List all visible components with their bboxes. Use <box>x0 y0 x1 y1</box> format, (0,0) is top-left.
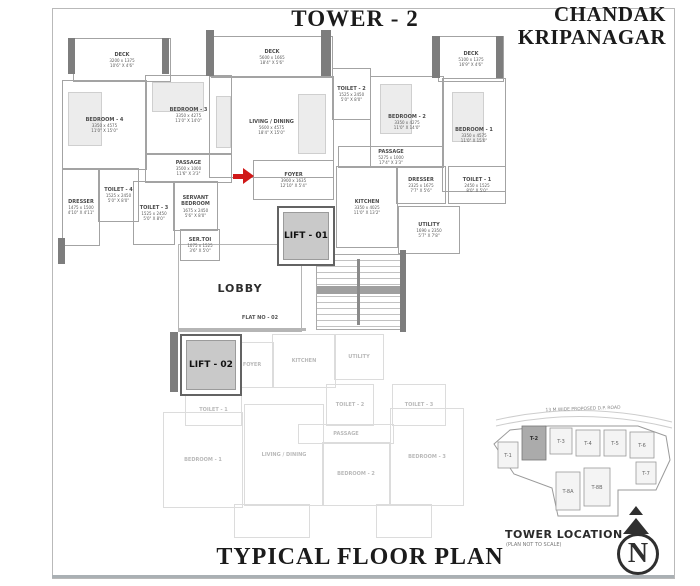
room-toilet-1: TOILET - 1 2450 x 1525 8'0" X 5'0" <box>448 166 506 204</box>
room-name: BEDROOM - 1 <box>184 457 222 464</box>
tower-location-map: 13 M WIDE PROPOSED D.P. ROAD T-1 T-2 T-3… <box>488 396 678 526</box>
room-dim-ft: 11'6" X 3'3" <box>177 171 201 176</box>
compass-spire-icon <box>629 506 643 515</box>
faded-deck <box>234 504 310 538</box>
tower-t2-highlighted <box>522 426 546 460</box>
wall-pillar <box>68 38 75 74</box>
room-name: BEDROOM - 3 <box>408 454 446 461</box>
room-passage-right: PASSAGE 5275 x 1000 17'4" X 3'3" <box>338 146 444 168</box>
room-dim-ft: 10'6" X 4'6" <box>110 63 134 68</box>
room-dim-ft: 17'4" X 3'3" <box>379 160 403 165</box>
entrance-arrow-icon <box>243 168 254 184</box>
room-dim-ft: 11'0" X 14'0" <box>175 118 201 123</box>
wall-duct <box>170 332 178 392</box>
plan-title: TYPICAL FLOOR PLAN <box>160 544 560 571</box>
room-dim-ft: 5'0" X 8'0" <box>143 216 164 221</box>
room-dim-ft: 11'0" X 13'2" <box>354 210 380 215</box>
wall-pillar <box>432 36 440 78</box>
room-dim-ft: 12'10" X 5'4" <box>280 183 306 188</box>
flat-no-label: FLAT NO - 02 <box>210 315 310 321</box>
faded-deck <box>376 504 432 538</box>
room-name: SERVANT BEDROOM <box>174 195 217 208</box>
room-dim-ft: 18'4" X 15'0" <box>258 130 284 135</box>
tower-label: T-3 <box>556 439 565 445</box>
brand-line-1: CHANDAK <box>488 3 666 26</box>
room-name: PASSAGE <box>333 431 358 438</box>
room-servant-bedroom: SERVANT BEDROOM 1675 x 2450 5'6" X 8'0" <box>173 181 218 231</box>
tower-label: T-4 <box>583 441 592 447</box>
room-toilet-3: TOILET - 3 1525 x 2450 5'0" X 8'0" <box>133 181 175 245</box>
room-dim-ft: 16'9" X 4'6" <box>459 62 483 67</box>
floor-plan-page: TOWER - 2 CHANDAK KRIPANAGAR TYPICAL FLO… <box>0 0 700 586</box>
stair-rail <box>357 259 360 325</box>
tower-label: T-5 <box>610 441 619 447</box>
room-name: LIVING / DINING <box>262 452 307 459</box>
room-name: BEDROOM - 2 <box>337 471 375 478</box>
entrance-arrow-tail <box>233 174 243 179</box>
room-dim-ft: 3'6" X 5'0" <box>189 248 210 253</box>
brand-name: CHANDAK KRIPANAGAR <box>488 3 666 48</box>
faded-room-utility: UTILITY <box>334 334 384 380</box>
room-dim-ft: 5'0" X 8'0" <box>108 198 129 203</box>
room-dresser-left: DRESSER 1475 x 1500 4'10" X 4'11" <box>62 168 100 246</box>
room-name: FOYER <box>243 362 261 369</box>
room-dim-ft: 11'0" X 14'0" <box>394 125 420 130</box>
lift-01: LIFT - 01 <box>277 206 335 266</box>
room-name: UTILITY <box>348 354 369 361</box>
room-dim-ft: 4'10" X 4'11" <box>68 210 94 215</box>
room-dim-ft: 5'7" X 7'8" <box>418 233 439 238</box>
compass-base-icon <box>623 518 649 534</box>
bottom-rule <box>52 575 674 578</box>
tower-location-title: TOWER LOCATION <box>505 528 623 541</box>
wall-pillar <box>321 30 331 76</box>
tower-label: T-1 <box>503 453 512 459</box>
page-title: TOWER - 2 <box>180 6 530 32</box>
room-toilet-2: TOILET - 2 1525 x 2450 5'0" X 8'0" <box>332 68 371 120</box>
wall-pillar <box>206 30 214 76</box>
room-dim-ft: 8'0" X 5'0" <box>466 188 487 193</box>
tower-label: T-7 <box>641 471 650 477</box>
room-dim-ft: 11'0" X 15'0" <box>91 128 117 133</box>
faded-room-bedroom-1: BEDROOM - 1 <box>163 412 243 508</box>
tower-label: T-8A <box>561 489 574 495</box>
lift-02: LIFT - 02 <box>180 334 242 396</box>
room-deck-mid: DECK 5600 x 1665 18'4" X 5'6" <box>211 36 333 78</box>
faded-room-living-dining: LIVING / DINING <box>244 404 324 506</box>
room-deck-right: DECK 5100 x 1375 16'9" X 4'6" <box>438 36 504 82</box>
room-dim-ft: 11'0" X 15'0" <box>461 138 487 143</box>
room-dim-ft: 5'6" X 8'0" <box>185 213 206 218</box>
room-kitchen: KITCHEN 3350 x 4025 11'0" X 13'2" <box>336 166 398 248</box>
tower-label: T-6 <box>637 443 646 449</box>
tower-location-subtitle: (PLAN NOT TO SCALE) <box>506 542 562 548</box>
wall-core-divider <box>178 328 306 331</box>
wall-pillar <box>162 38 169 74</box>
room-utility: UTILITY 1690 x 2350 5'7" X 7'8" <box>398 206 460 254</box>
room-bedroom-4: BEDROOM - 4 3350 x 4575 11'0" X 15'0" <box>62 80 147 170</box>
tower-label: T-8B <box>590 485 603 491</box>
north-compass-icon: N <box>617 533 659 575</box>
room-foyer: FOYER 3900 x 1635 12'10" X 5'4" <box>253 160 334 200</box>
room-dim-ft: 18'4" X 5'6" <box>260 60 284 65</box>
wall-pillar <box>496 36 503 78</box>
room-dim-ft: 5'0" X 8'0" <box>341 97 362 102</box>
wall-pillar <box>58 238 65 264</box>
room-dim-ft: 7'7" X 5'6" <box>410 188 431 193</box>
faded-room-toilet-2: TOILET - 2 <box>326 384 374 426</box>
faded-room-kitchen: KITCHEN <box>272 334 336 388</box>
brand-line-2: KRIPANAGAR <box>488 26 666 49</box>
tower-label: T-2 <box>530 436 539 442</box>
room-ser-toi: SER.TOI 1075 x 1525 3'6" X 5'0" <box>180 229 220 261</box>
room-name: KITCHEN <box>292 358 317 365</box>
wall-stair-side <box>400 250 406 332</box>
room-dresser-right: DRESSER 2325 x 1675 7'7" X 5'6" <box>396 166 446 204</box>
faded-room-bedroom-3: BEDROOM - 3 <box>390 408 464 506</box>
faded-room-bedroom-2: BEDROOM - 2 <box>322 442 390 506</box>
room-name: TOILET - 2 <box>336 402 365 409</box>
